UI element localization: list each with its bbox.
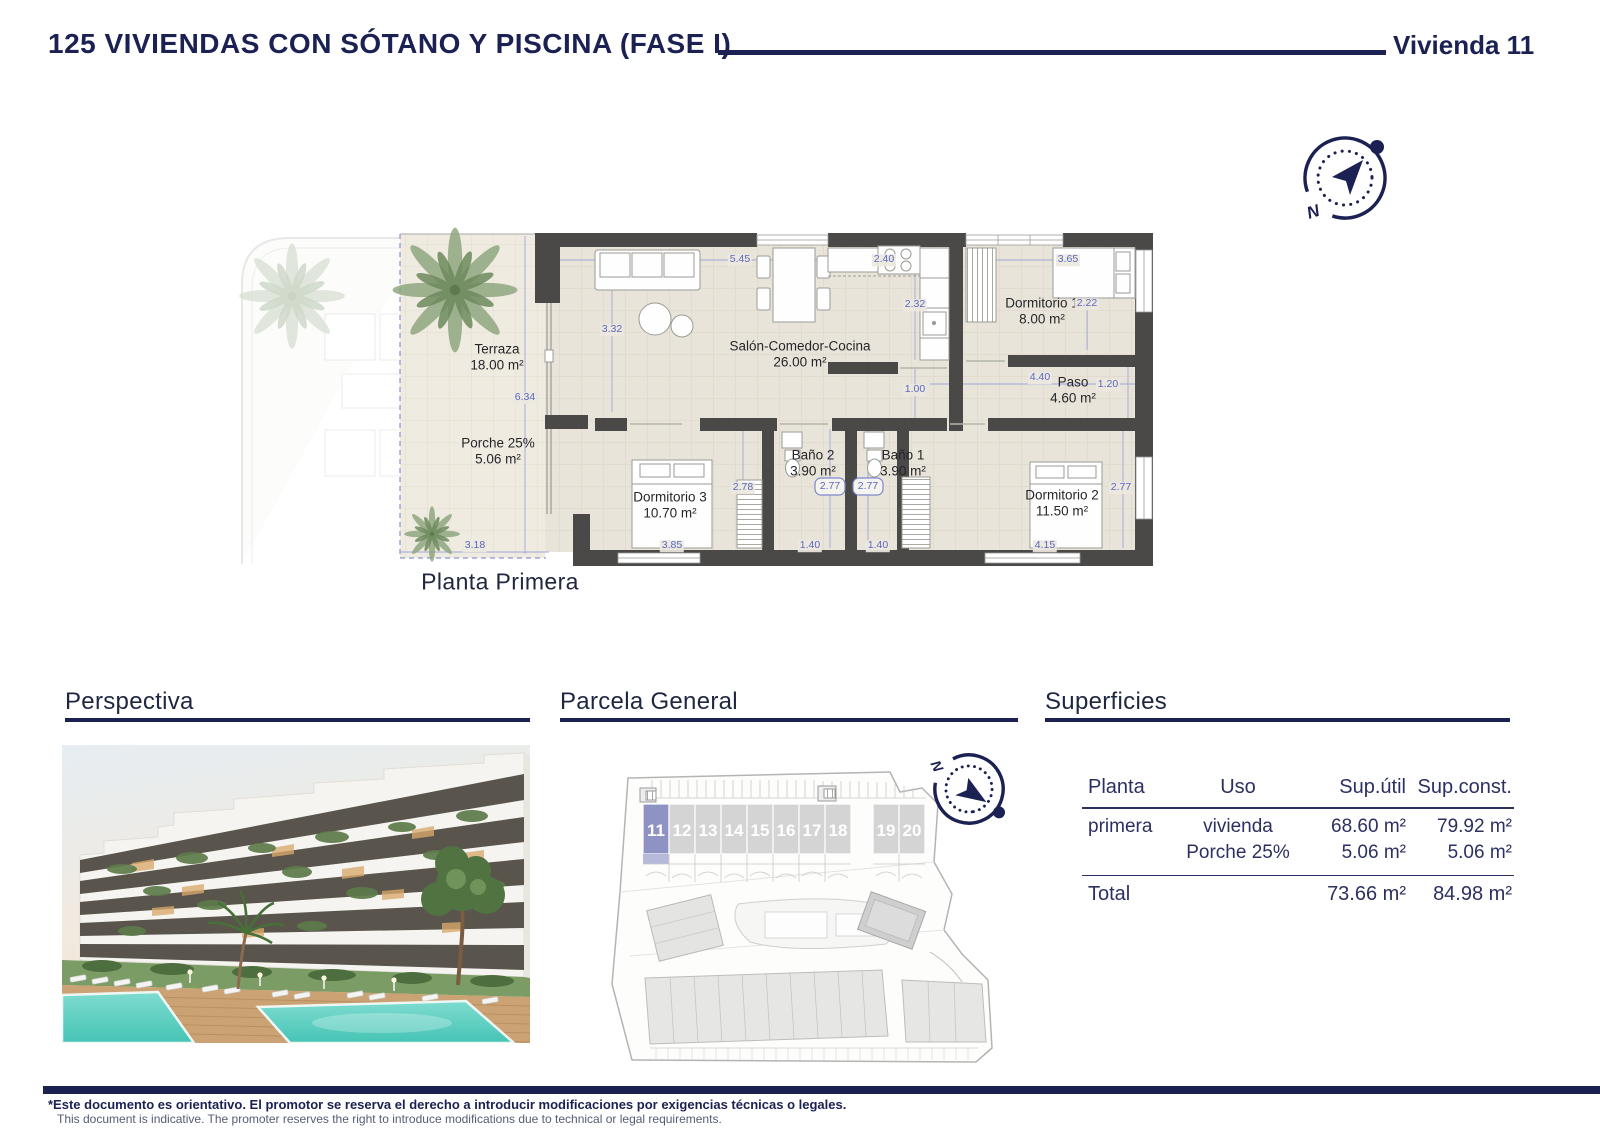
north-compass-icon: N: [1297, 130, 1393, 231]
dimension-label: 1.40: [798, 540, 822, 552]
palm-tree-icon: [393, 228, 518, 353]
dimension-label: 6.34: [513, 392, 537, 404]
dimension-label: 4.15: [1033, 540, 1057, 552]
wardrobe-dorm1: [966, 248, 996, 322]
room-label-bano1: Baño 13.90 m²: [880, 448, 926, 481]
dimension-label: 2.77: [856, 481, 880, 493]
footer-disclaimer-en: This document is indicative. The promote…: [57, 1112, 722, 1126]
table-header-row: Planta Uso Sup.útil Sup.const.: [1082, 774, 1514, 801]
wardrobe-dorm2: [902, 477, 930, 548]
coffee-table: [639, 303, 671, 335]
room-label-dormitorio2: Dormitorio 211.50 m²: [1025, 488, 1099, 521]
dimension-label: 3.85: [660, 540, 684, 552]
dimension-label: 2.77: [818, 481, 842, 493]
dimension-label: 1.00: [903, 384, 927, 396]
dimension-label: 1.20: [1096, 379, 1120, 391]
dimension-label: 5.45: [728, 254, 752, 266]
unit-numbers: 11 12 13 14 15 16 17 18 19 20: [647, 821, 921, 840]
dimension-label: 2.40: [872, 254, 896, 266]
svg-text:16: 16: [777, 821, 796, 840]
title-divider: [718, 50, 1386, 55]
superficies-table: Planta Uso Sup.útil Sup.const. primera v…: [1082, 774, 1514, 908]
perspectiva-underline: [65, 718, 530, 722]
footer-disclaimer-es: *Este documento es orientativo. El promo…: [48, 1097, 846, 1112]
superficies-heading: Superficies: [1045, 688, 1167, 716]
room-label-porche: Porche 25%5.06 m²: [461, 436, 535, 469]
svg-text:11: 11: [647, 821, 665, 840]
table-row: primera vivienda 68.60 m² 79.92 m²: [1082, 814, 1514, 840]
svg-text:20: 20: [903, 821, 922, 840]
dimension-label: 1.40: [866, 540, 890, 552]
dimension-label: 4.40: [1028, 372, 1052, 384]
room-label-terraza: Terraza18.00 m²: [470, 342, 523, 375]
footer-bar: [43, 1086, 1600, 1094]
svg-text:13: 13: [699, 821, 718, 840]
brochure-page: 125 VIVIENDAS CON SÓTANO Y PISCINA (FASE…: [0, 0, 1600, 1131]
table-total-rule: [1082, 875, 1514, 876]
site-compass-icon: N: [928, 748, 1010, 835]
dimension-label: 2.78: [731, 482, 755, 494]
floor-plan: Terraza18.00 m² Porche 25%5.06 m² Salón-…: [230, 222, 1180, 574]
dining-table: [773, 248, 815, 322]
neighbour-terrace: [239, 238, 422, 564]
bath2-basin: [782, 432, 802, 448]
table-row: Porche 25% 5.06 m² 5.06 m²: [1082, 840, 1514, 866]
table-total-row: Total 73.66 m² 84.98 m²: [1082, 881, 1514, 908]
room-label-paso: Paso4.60 m²: [1050, 375, 1096, 408]
bath1-basin: [864, 432, 884, 448]
svg-text:15: 15: [751, 821, 770, 840]
room-label-dormitorio3: Dormitorio 310.70 m²: [633, 490, 707, 523]
dimension-label: 2.77: [1109, 482, 1133, 494]
col-planta: Planta: [1082, 776, 1174, 799]
perspectiva-heading: Perspectiva: [65, 688, 194, 716]
room-label-bano2: Baño 23.90 m²: [790, 448, 836, 481]
parcela-heading: Parcela General: [560, 688, 738, 716]
page-title: 125 VIVIENDAS CON SÓTANO Y PISCINA (FASE…: [48, 28, 731, 60]
col-uso: Uso: [1174, 776, 1302, 799]
svg-text:17: 17: [803, 821, 822, 840]
svg-text:N: N: [1304, 201, 1322, 223]
col-sup-util: Sup.útil: [1302, 776, 1408, 799]
dimension-label: 3.32: [600, 324, 624, 336]
palm-tree-icon-small: [404, 506, 460, 562]
table-header-rule: [1082, 807, 1514, 809]
room-label-salon: Salón-Comedor-Cocina26.00 m²: [729, 339, 870, 372]
svg-text:N: N: [928, 758, 946, 775]
dimension-label: 3.18: [463, 540, 487, 552]
parcela-underline: [560, 718, 1018, 722]
dimension-label: 2.32: [903, 299, 927, 311]
dimension-label: 3.65: [1056, 254, 1080, 266]
dimension-label: 2.22: [1075, 298, 1099, 310]
room-label-dormitorio1: Dormitorio 18.00 m²: [1005, 296, 1079, 329]
unit-label: Vivienda 11: [1393, 30, 1534, 61]
svg-text:19: 19: [877, 821, 896, 840]
col-sup-const: Sup.const.: [1408, 776, 1514, 799]
svg-text:12: 12: [673, 821, 692, 840]
perspective-render: [62, 745, 530, 1043]
superficies-underline: [1045, 718, 1510, 722]
svg-text:18: 18: [829, 821, 848, 840]
svg-text:14: 14: [725, 821, 744, 840]
floorplan-caption: Planta Primera: [421, 569, 579, 596]
